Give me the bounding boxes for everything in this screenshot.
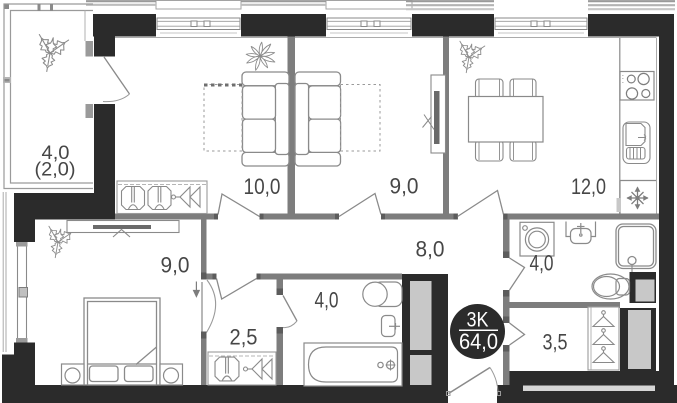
svg-text:9,0: 9,0 — [390, 174, 419, 199]
svg-text:3,5: 3,5 — [543, 330, 568, 355]
svg-text:12,0: 12,0 — [571, 174, 606, 199]
svg-text:4,0: 4,0 — [530, 251, 554, 276]
svg-text:4,0: 4,0 — [315, 288, 339, 313]
svg-text:9,0: 9,0 — [161, 253, 190, 278]
svg-text:8,0: 8,0 — [416, 237, 445, 262]
svg-text:2,5: 2,5 — [230, 325, 258, 350]
svg-text:64,0: 64,0 — [459, 329, 498, 354]
svg-text:10,0: 10,0 — [244, 174, 281, 199]
svg-text:(2,0): (2,0) — [35, 160, 76, 181]
